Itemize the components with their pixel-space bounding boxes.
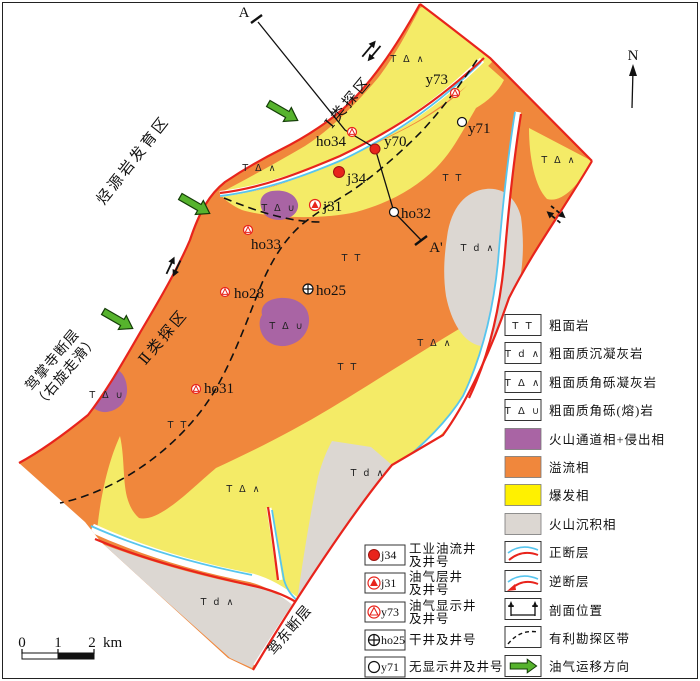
well-label: ho31 xyxy=(204,381,234,397)
legend-well-id: ho25 xyxy=(381,633,405,647)
legend-label: 逆断层 xyxy=(549,574,590,589)
geological-map-figure: A A' T Δ ∧ T Δ ∧ T Δ ∧ T Δ xyxy=(0,0,700,681)
scale-unit: km xyxy=(103,635,123,651)
legend-label: 剖面位置 xyxy=(549,603,603,618)
legend-well-id: j31 xyxy=(380,576,396,590)
legend-code-text: T Δ ∧ xyxy=(504,378,542,389)
rock-label: T Δ ∧ xyxy=(416,338,452,349)
well-label: ho32 xyxy=(401,206,431,222)
well-marker-oil-gas-show xyxy=(451,89,460,98)
legend-label: 爆发相 xyxy=(549,488,590,503)
well-label: y73 xyxy=(426,72,449,88)
legend-favorable-box xyxy=(505,627,541,648)
well-label: ho28 xyxy=(234,286,264,302)
legend-label: 粗面岩 xyxy=(549,318,590,333)
legend-code-text: T Δ ∪ xyxy=(504,406,542,417)
legend-code-text: T T xyxy=(511,321,533,332)
legend-well-id: y73 xyxy=(381,605,399,619)
well-label: y70 xyxy=(384,134,407,150)
well-marker-industrial-oil xyxy=(334,167,345,178)
legend-label: 溢流相 xyxy=(549,461,590,475)
legend-label: 粗面质沉凝灰岩 xyxy=(549,346,644,361)
section-label-a-prime: A' xyxy=(429,240,443,256)
legend-swatch-explosive xyxy=(505,485,541,506)
legend-swatch-conduit xyxy=(505,429,541,450)
well-marker-oil-gas-layer xyxy=(310,200,321,211)
well-marker-dry xyxy=(303,284,313,294)
north-label: N xyxy=(628,48,639,64)
rock-label: T Δ ∧ xyxy=(540,155,576,166)
legend-well-label: 工业油流井 xyxy=(409,542,477,556)
rock-label: T T xyxy=(442,173,464,184)
legend-well-label: 及井号 xyxy=(409,555,450,569)
well-label: ho34 xyxy=(316,134,347,150)
section-label-a: A xyxy=(239,5,250,21)
legend-well-label: 干井及井号 xyxy=(409,633,477,647)
rock-label: T d ∧ xyxy=(200,597,236,608)
well-label: ho33 xyxy=(251,237,281,253)
legend-label: 油气运移方向 xyxy=(549,659,630,674)
legend-well-label: 油气显示井 xyxy=(409,598,477,613)
legend-well-id: y71 xyxy=(381,660,399,674)
scale-tick-2: 2 xyxy=(88,635,96,651)
well-marker-oil-gas-show xyxy=(192,385,201,394)
legend-swatch-sedimentary xyxy=(505,514,541,535)
rock-label: T T xyxy=(337,362,359,373)
legend-well-label: 及井号 xyxy=(409,583,450,597)
rock-label: T d ∧ xyxy=(350,468,386,479)
legend-label: 火山通道相+侵出相 xyxy=(549,432,665,447)
well-marker-industrial-oil xyxy=(370,144,380,154)
rock-label: T Δ ∪ xyxy=(268,321,304,332)
legend-label: 火山沉积相 xyxy=(549,518,617,532)
well-marker-no-show xyxy=(390,208,399,217)
scale-tick-0: 0 xyxy=(18,635,26,651)
well-label: ho25 xyxy=(316,283,346,299)
well-label: j34 xyxy=(346,171,367,187)
rock-label: T Δ ∧ xyxy=(225,484,261,495)
well-marker-oil-gas-show xyxy=(221,288,230,297)
legend-code-text: T d ∧ xyxy=(504,349,541,360)
industrial-oil-well-icon xyxy=(369,550,380,561)
rock-label: T T xyxy=(167,420,189,431)
legend-label: 正断层 xyxy=(549,545,590,560)
well-marker-oil-gas-show xyxy=(348,128,357,137)
legend-well-label: 及井号 xyxy=(409,612,450,626)
legend-swatch-effusive xyxy=(505,457,541,478)
legend-well-label: 无显示井及井号 xyxy=(409,660,504,674)
rock-label: T d ∧ xyxy=(460,243,496,254)
rock-label: T Δ ∧ xyxy=(241,163,277,174)
rock-label: T Δ ∪ xyxy=(260,203,296,214)
legend-label: 粗面质角砾凝灰岩 xyxy=(549,375,657,390)
scale-tick-1: 1 xyxy=(54,635,62,651)
rock-label: T Δ ∧ xyxy=(389,54,425,65)
legend-label: 粗面质角砾(熔)岩 xyxy=(549,403,654,418)
well-label: j31 xyxy=(322,199,342,215)
map-svg: A A' T Δ ∧ T Δ ∧ T Δ ∧ T Δ xyxy=(0,0,700,681)
rock-label: T T xyxy=(341,253,363,264)
rock-label: T Δ ∪ xyxy=(88,390,124,401)
well-marker-no-show xyxy=(458,118,467,127)
legend-well-id: j34 xyxy=(380,548,396,562)
no-show-well-icon xyxy=(369,662,380,673)
scale-bar-segment-black xyxy=(58,653,94,659)
scale-bar-segment-white xyxy=(22,653,58,659)
legend-well-label: 油气层井 xyxy=(409,569,463,584)
well-marker-oil-gas-show xyxy=(244,226,253,235)
well-label: y71 xyxy=(468,121,491,137)
legend-label: 有利勘探区带 xyxy=(549,632,630,646)
